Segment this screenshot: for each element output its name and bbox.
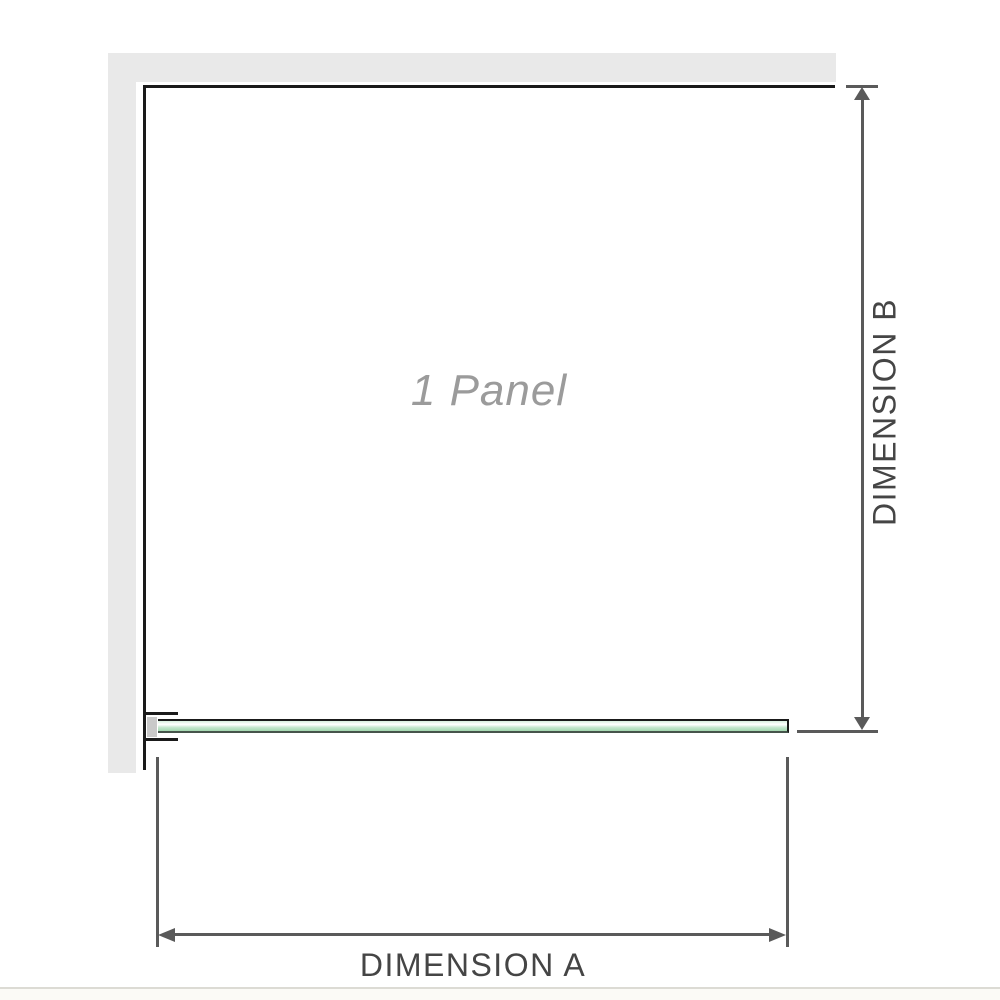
- panel-outline-left-line: [143, 85, 146, 770]
- glass-panel-bar: [158, 719, 789, 733]
- arrow-right-icon: [769, 928, 786, 942]
- dimension-a-label: DIMENSION A: [157, 947, 789, 984]
- panel-count-label: 1 Panel: [143, 366, 835, 416]
- dimension-a-left-tick: [156, 757, 159, 947]
- arrow-left-icon: [158, 928, 175, 942]
- dimension-a-right-tick: [786, 757, 789, 947]
- dimension-b-line: [861, 96, 864, 723]
- dimension-a-line: [172, 933, 774, 936]
- dimension-b-bottom-tick: [797, 730, 878, 733]
- dimension-b-label: DIMENSION B: [867, 298, 904, 526]
- arrow-up-icon: [854, 87, 870, 100]
- wall-top: [108, 53, 836, 82]
- arrow-down-icon: [854, 717, 870, 730]
- panel-outline-top-line: [143, 85, 835, 88]
- footer-strip: [0, 989, 1000, 1000]
- shower-screen-diagram: 1 Panel DIMENSION B DIMENSION A: [0, 0, 1000, 1000]
- wall-left: [108, 53, 136, 773]
- bracket-spacer: [147, 717, 157, 737]
